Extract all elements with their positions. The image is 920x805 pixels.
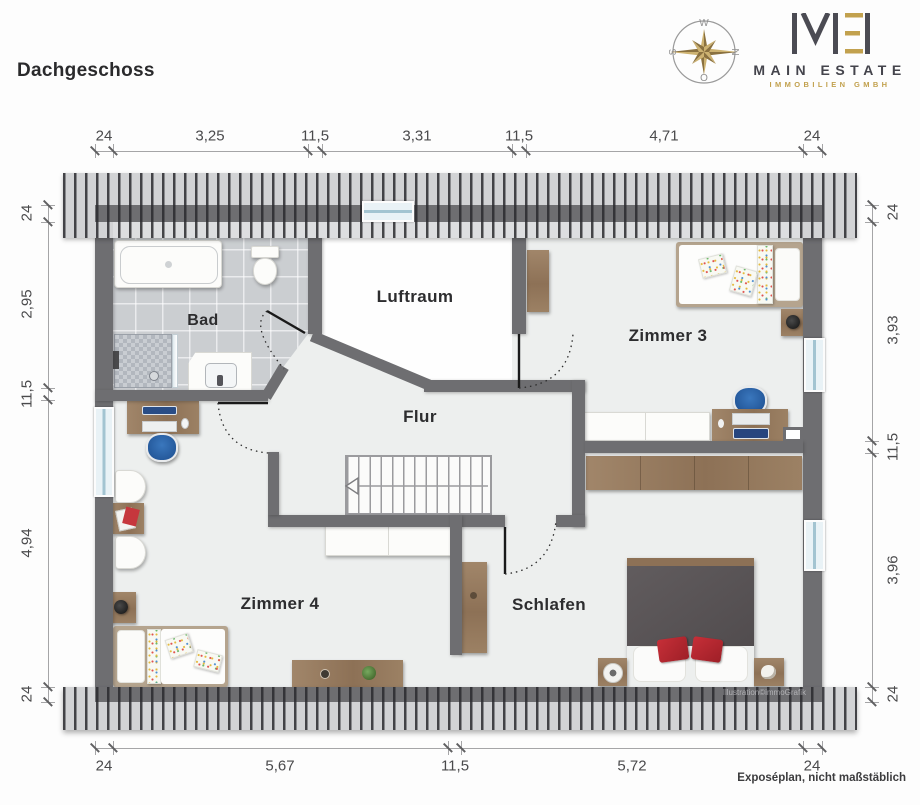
door-arc-zimmer3 [519, 334, 573, 388]
dim-bottom-4: 5,72 [617, 758, 646, 775]
brand-subtitle: IMMOBILIEN GMBH [752, 80, 908, 89]
compass-letter-w: W [699, 18, 709, 29]
dim-top-4: 3,31 [402, 128, 431, 145]
compass-letter-n: N [729, 48, 740, 55]
dim-left-1: 24 [19, 205, 36, 222]
room-label-flur: Flur [403, 407, 437, 427]
window-right-schlafen [804, 520, 825, 571]
door-arc-schlafen [505, 521, 556, 574]
bathroom-bevel-wall-stub [266, 367, 284, 397]
dim-left-4: 4,94 [19, 528, 36, 557]
eave-hatching [63, 173, 857, 238]
dim-top-3: 11,5 [301, 128, 329, 145]
dim-top-2: 3,25 [195, 128, 224, 145]
room-label-zimmer3: Zimmer 3 [629, 326, 708, 346]
room-label-schlafen: Schlafen [512, 595, 586, 615]
roof-eave-top [63, 173, 857, 238]
dim-top-7: 24 [804, 128, 821, 145]
page-title: Dachgeschoss [17, 60, 155, 82]
floorplan-page: Dachgeschoss W N O S MAIN ESTATE IMMOBIL… [0, 0, 920, 805]
doors-and-diagonals [0, 0, 920, 805]
room-label-zimmer4: Zimmer 4 [241, 594, 320, 614]
dim-bottom-1: 24 [96, 758, 113, 775]
dim-right-3: 11,5 [885, 433, 902, 461]
dim-bottom-3: 11,5 [441, 758, 469, 775]
compass-icon: W N O S [666, 14, 742, 90]
dim-right-5: 24 [885, 686, 902, 703]
door-leaf-bad [267, 311, 305, 333]
door-arc-zimmer4 [218, 403, 268, 453]
brand-name: MAIN ESTATE [752, 62, 908, 78]
dim-top-5: 11,5 [505, 128, 533, 145]
dim-top-6: 4,71 [649, 128, 678, 145]
dim-left-3: 11,5 [19, 380, 36, 408]
watermark: Illustration©immoGrafik [720, 688, 806, 697]
dim-left-2: 2,95 [19, 289, 36, 318]
window-left [94, 407, 114, 497]
main-estate-logo-icon [792, 13, 870, 54]
dim-left-5: 24 [19, 686, 36, 703]
compass-letter-s: S [668, 48, 679, 55]
dim-right-1: 24 [885, 204, 902, 221]
skylight-window [362, 201, 414, 222]
dim-bottom-2: 5,67 [265, 758, 294, 775]
room-label-luftraum: Luftraum [377, 287, 454, 307]
stair-arrow-icon [346, 478, 358, 494]
dim-right-2: 3,93 [885, 315, 902, 344]
dim-top-1: 24 [96, 128, 113, 145]
luftraum-bevel-wall [312, 336, 429, 385]
compass-letter-o: O [700, 71, 708, 82]
dim-right-4: 3,96 [885, 555, 902, 584]
window-right-zimmer3 [804, 338, 825, 392]
scale-note: Exposéplan, nicht maßstäblich [737, 772, 906, 784]
room-label-bad: Bad [187, 312, 218, 330]
